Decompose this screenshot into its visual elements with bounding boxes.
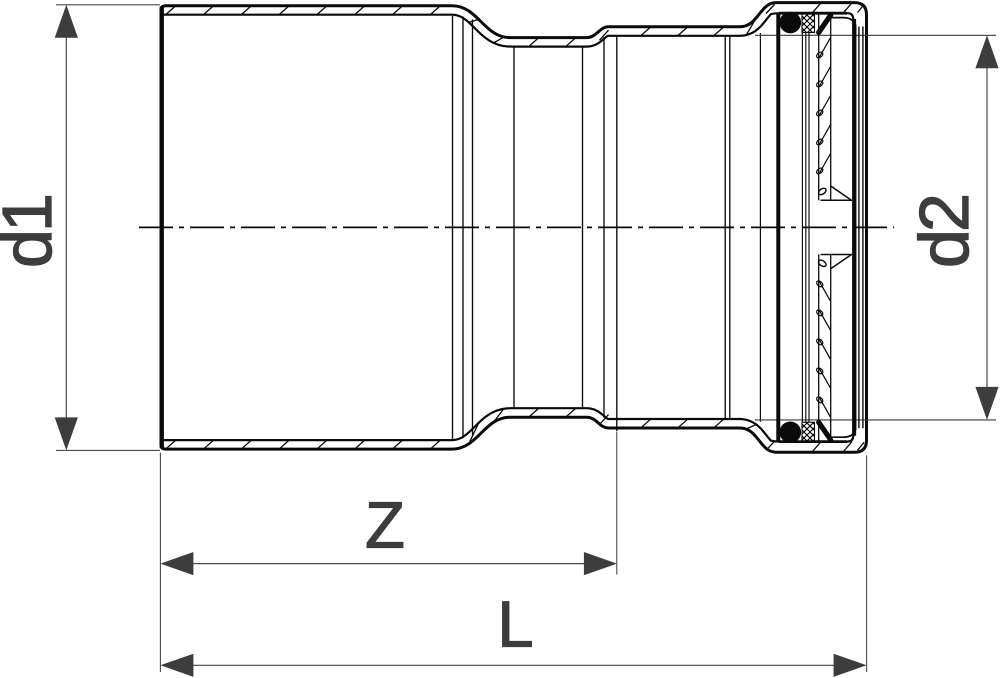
svg-text:d2: d2: [905, 196, 983, 268]
svg-text:L: L: [497, 588, 533, 661]
svg-text:Z: Z: [365, 489, 405, 562]
svg-text:d1: d1: [0, 196, 66, 268]
